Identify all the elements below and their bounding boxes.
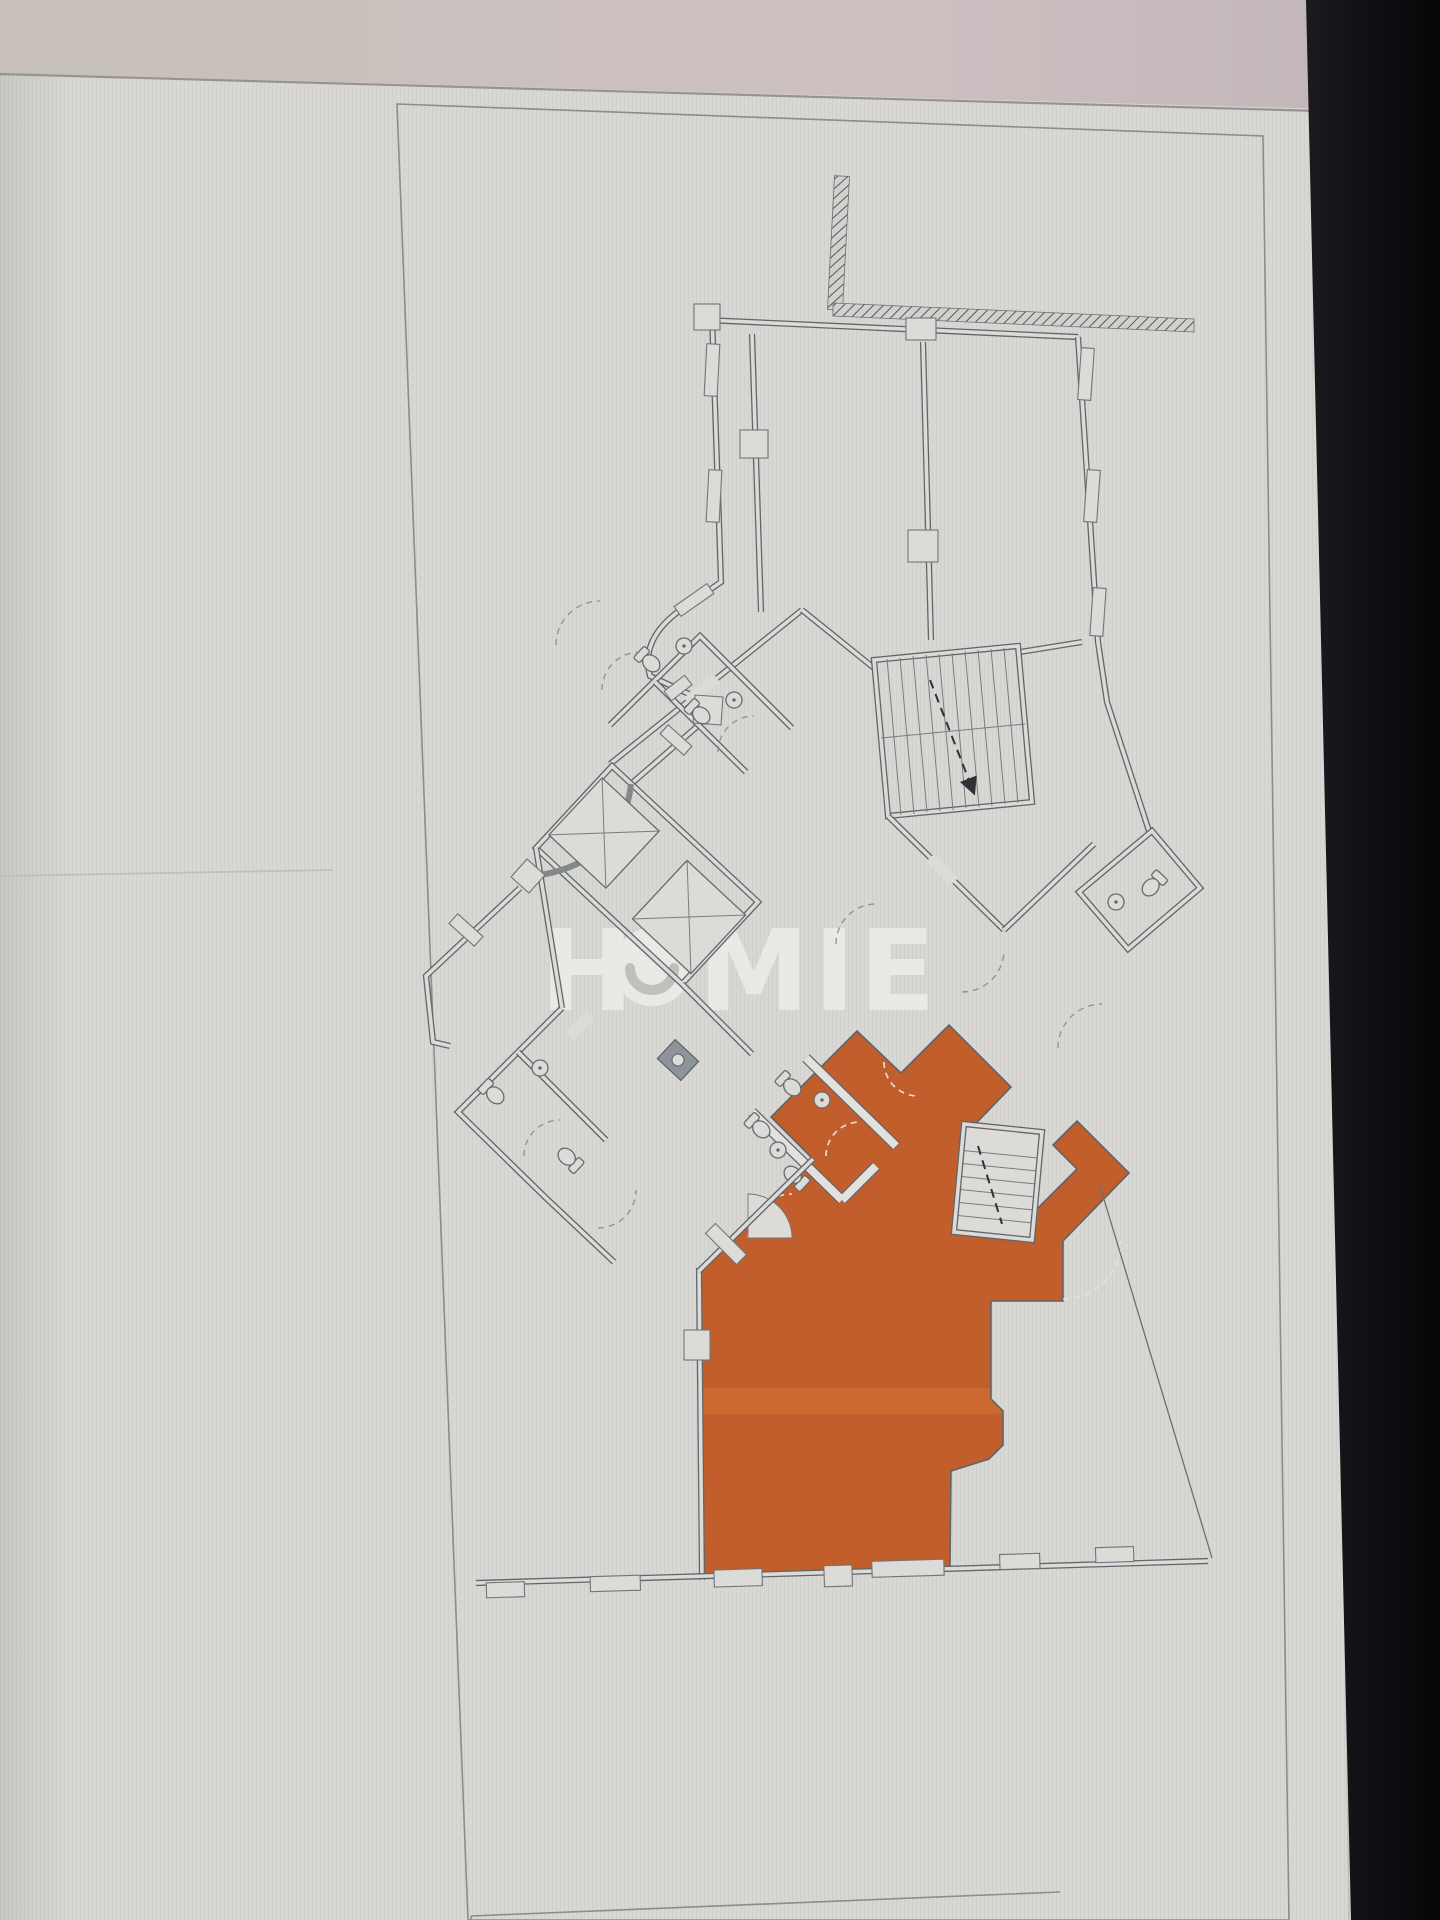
- toilet-icon: [1138, 869, 1168, 899]
- counter-sink: [657, 1040, 698, 1081]
- page-divider-line: [0, 870, 333, 876]
- toilet-icon: [743, 1112, 773, 1142]
- sink-icon: [676, 638, 692, 654]
- toilet-icon: [477, 1078, 507, 1108]
- screen-photo: H MIE: [0, 0, 1440, 1920]
- column: [694, 304, 720, 330]
- main-stair: [881, 648, 1025, 815]
- secondary-stair: [953, 1124, 1042, 1240]
- sink-icon: [770, 1142, 786, 1158]
- homie-watermark: H MIE: [540, 907, 940, 1037]
- floor-plan-canvas: H MIE: [0, 0, 1440, 1920]
- column: [740, 430, 768, 458]
- sink-icon: [1108, 894, 1124, 910]
- hatched-wall: [828, 176, 1194, 332]
- monitor-bezel: [1306, 0, 1440, 1920]
- photo-top-band: [0, 0, 1440, 112]
- next-sheet-edge: [471, 1892, 1060, 1920]
- toilet-icon: [554, 1144, 584, 1174]
- door-swing-arc: [1063, 1241, 1121, 1299]
- sink-icon: [814, 1092, 830, 1108]
- column: [684, 1330, 710, 1360]
- column: [906, 318, 936, 340]
- toilet-icon: [633, 646, 663, 676]
- sink-icon: [532, 1060, 548, 1076]
- boundary-line: [1100, 1186, 1212, 1558]
- column: [908, 530, 938, 562]
- sink-icon: [726, 692, 742, 708]
